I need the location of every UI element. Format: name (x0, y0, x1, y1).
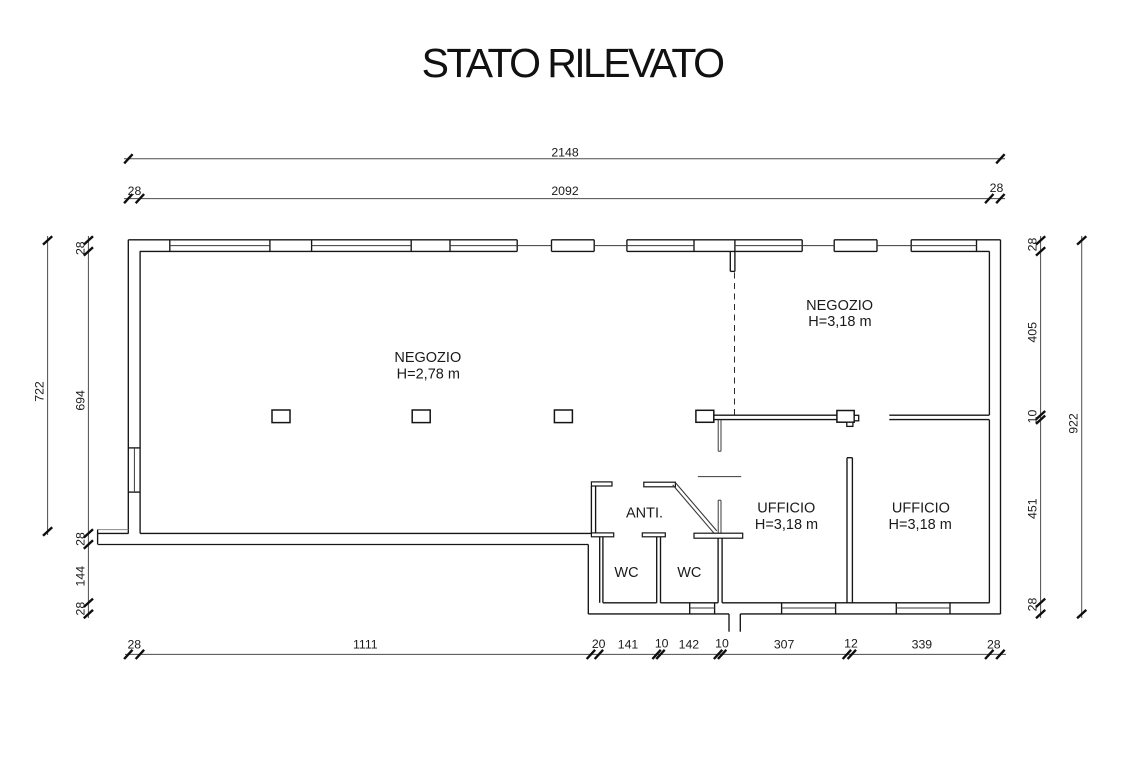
svg-text:451: 451 (1026, 498, 1040, 519)
svg-text:ANTI.: ANTI. (626, 506, 663, 522)
svg-text:2092: 2092 (551, 184, 579, 198)
svg-text:28: 28 (1026, 598, 1040, 612)
svg-text:922: 922 (1067, 413, 1081, 434)
svg-text:20: 20 (592, 637, 606, 651)
svg-text:28: 28 (128, 184, 142, 198)
svg-text:28: 28 (73, 602, 87, 616)
svg-text:28: 28 (73, 241, 87, 255)
svg-text:722: 722 (33, 381, 47, 402)
svg-text:10: 10 (715, 637, 729, 651)
svg-text:141: 141 (618, 638, 639, 652)
svg-text:10: 10 (1026, 410, 1040, 424)
svg-text:UFFICIO: UFFICIO (892, 500, 950, 516)
svg-text:UFFICIO: UFFICIO (757, 500, 815, 516)
svg-text:H=3,18 m: H=3,18 m (808, 314, 871, 330)
svg-text:28: 28 (987, 638, 1001, 652)
svg-text:405: 405 (1026, 322, 1040, 343)
svg-text:2148: 2148 (551, 146, 579, 160)
svg-text:694: 694 (73, 390, 87, 411)
svg-text:WC: WC (677, 565, 701, 581)
svg-text:28: 28 (127, 638, 141, 652)
svg-text:H=3,18 m: H=3,18 m (755, 517, 818, 533)
svg-text:NEGOZIO: NEGOZIO (394, 350, 461, 366)
svg-text:H=2,78 m: H=2,78 m (397, 367, 460, 383)
svg-text:339: 339 (912, 638, 933, 652)
svg-text:10: 10 (655, 637, 669, 651)
svg-text:142: 142 (679, 638, 700, 652)
svg-text:307: 307 (774, 638, 795, 652)
svg-text:28: 28 (990, 181, 1004, 195)
svg-text:1111: 1111 (353, 638, 378, 652)
svg-text:WC: WC (614, 565, 638, 581)
svg-text:144: 144 (73, 566, 87, 587)
svg-text:12: 12 (844, 637, 858, 651)
svg-text:STATO RILEVATO: STATO RILEVATO (422, 40, 723, 86)
svg-text:H=3,18 m: H=3,18 m (889, 517, 952, 533)
svg-text:28: 28 (1026, 238, 1040, 252)
svg-text:28: 28 (73, 532, 87, 546)
svg-text:NEGOZIO: NEGOZIO (806, 298, 873, 314)
